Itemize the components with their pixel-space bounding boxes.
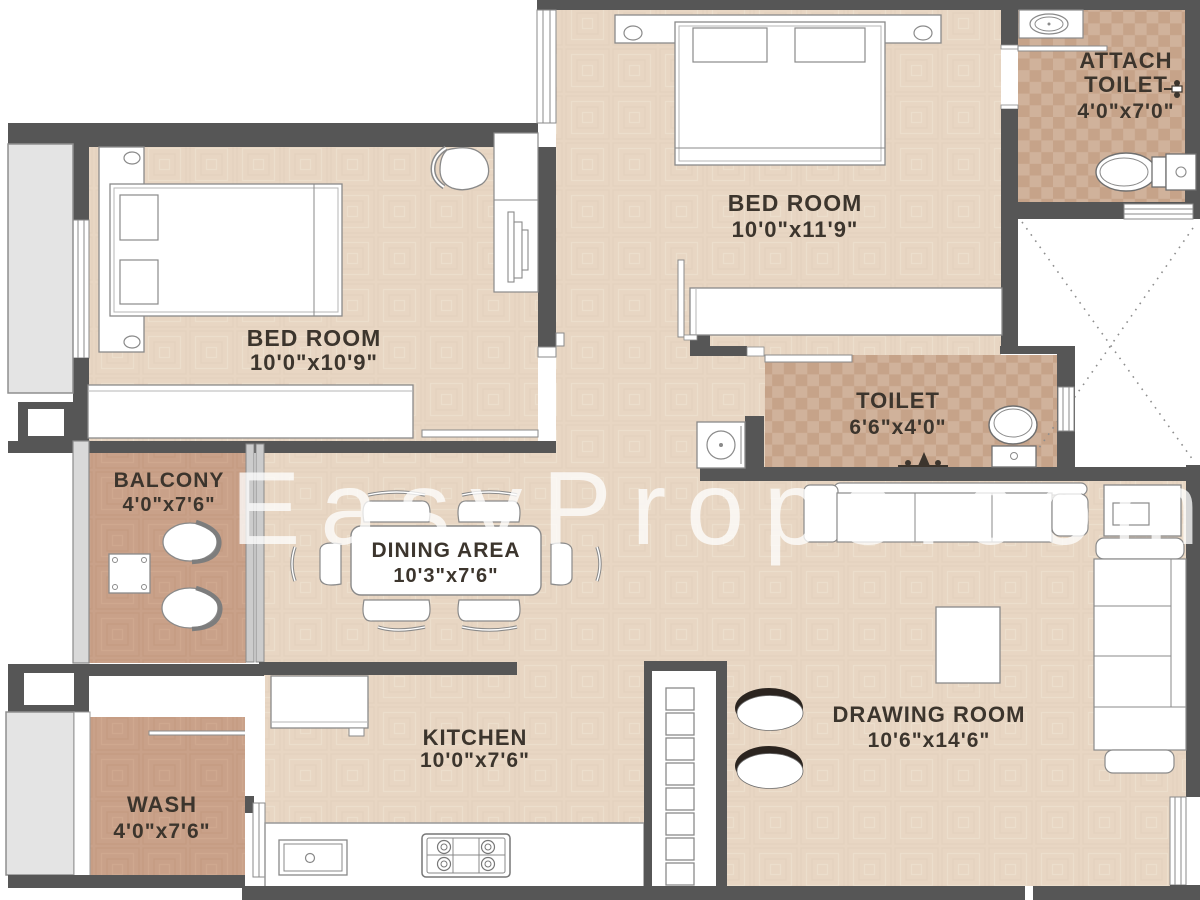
- svg-text:10'0"x10'9": 10'0"x10'9": [250, 350, 378, 375]
- svg-text:10'3"x7'6": 10'3"x7'6": [393, 565, 498, 587]
- svg-text:KITCHEN: KITCHEN: [423, 725, 528, 750]
- svg-text:10'6"x14'6": 10'6"x14'6": [868, 729, 991, 752]
- svg-text:ATTACH: ATTACH: [1079, 48, 1172, 73]
- svg-text:4'0"x7'6": 4'0"x7'6": [122, 494, 215, 516]
- svg-text:10'0"x11'9": 10'0"x11'9": [732, 217, 859, 242]
- svg-text:BED ROOM: BED ROOM: [728, 190, 863, 216]
- svg-text:6'6"x4'0": 6'6"x4'0": [849, 416, 946, 439]
- svg-text:4'0"x7'6": 4'0"x7'6": [113, 820, 210, 843]
- svg-text:10'0"x7'6": 10'0"x7'6": [420, 749, 530, 772]
- svg-text:BALCONY: BALCONY: [114, 469, 225, 492]
- svg-text:TOILET: TOILET: [856, 388, 940, 413]
- svg-text:4'0"x7'0": 4'0"x7'0": [1077, 100, 1174, 123]
- svg-text:TOILET: TOILET: [1084, 72, 1168, 97]
- svg-text:DINING AREA: DINING AREA: [371, 539, 520, 562]
- svg-text:BED ROOM: BED ROOM: [247, 325, 382, 351]
- svg-text:DRAWING ROOM: DRAWING ROOM: [833, 702, 1026, 727]
- svg-text:WASH: WASH: [127, 792, 197, 817]
